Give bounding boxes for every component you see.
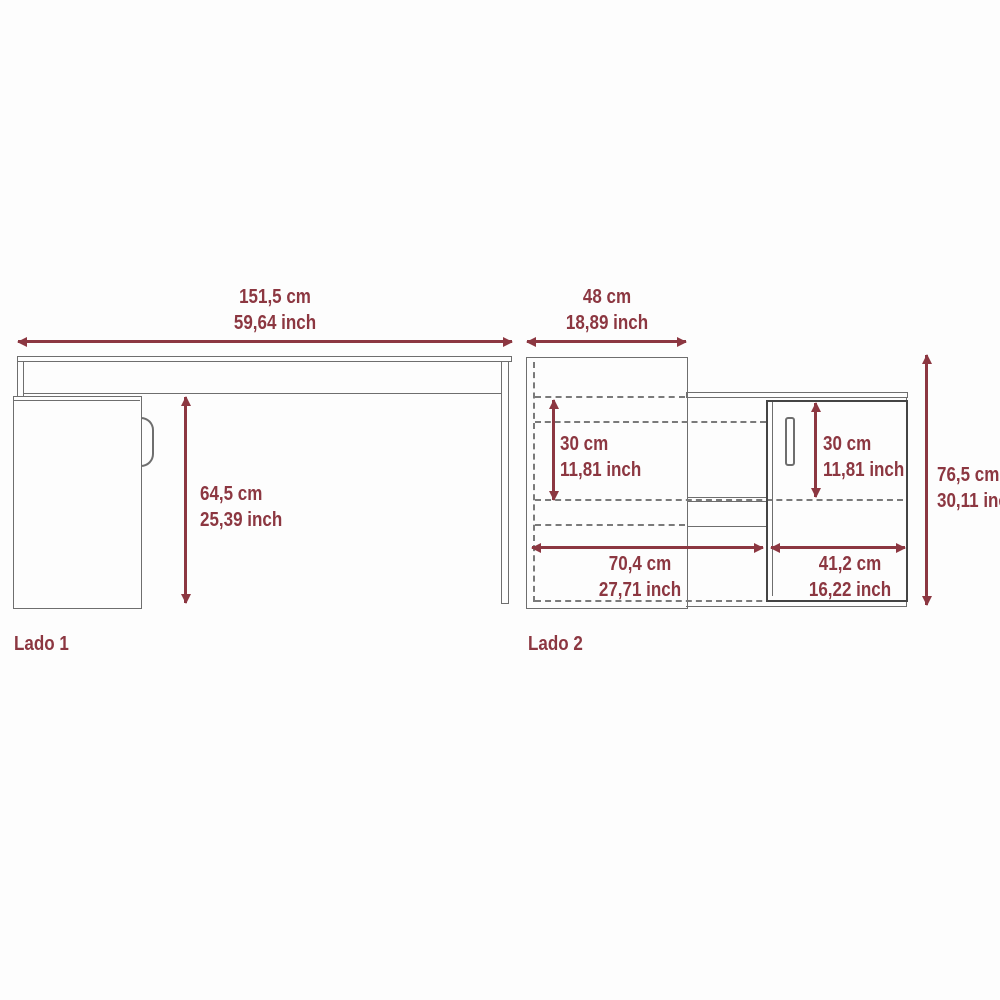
arrowhead-down-icon [922, 596, 932, 606]
lado1-height-cm: 64,5 cm [200, 481, 282, 507]
door-handle-slot-icon [785, 417, 795, 466]
lado2-top-width-cm: 48 cm [534, 284, 680, 310]
bottom-left-width-inch: 27,71 inch [555, 577, 725, 603]
lado2-top-width-dimension-line [527, 340, 686, 343]
pedestal-cabinet [13, 396, 142, 609]
cabinet-top-surface [686, 392, 908, 398]
lado1-title: Lado 1 [14, 633, 69, 655]
desk-top-surface [17, 356, 512, 362]
tower-shelf-dashed-4 [535, 524, 685, 526]
bottom-left-width-dimension-line [532, 546, 763, 549]
total-height-dimension-line [925, 355, 928, 605]
door-height-cm: 30 cm [823, 431, 904, 457]
furniture-dimension-diagram: 151,5 cm 59,64 inch 64,5 cm 25,39 inch L… [0, 0, 1000, 1000]
tower-shelf-dashed-2 [535, 421, 766, 423]
arrowhead-up-icon [922, 354, 932, 364]
lado2-top-width-inch: 18,89 inch [534, 310, 680, 336]
arrowhead-left-icon [17, 337, 27, 347]
arrowhead-right-icon [754, 543, 764, 553]
desk-left-edge-outer [17, 361, 18, 397]
tower-shelf-height-dimension-label: 30 cm 11,81 inch [560, 431, 641, 483]
pedestal-top-inner-edge [13, 400, 140, 401]
bottom-right-width-inch: 16,22 inch [765, 577, 935, 603]
total-height-dimension-label: 76,5 cm 30,11 inch [937, 462, 1000, 514]
lado1-width-dimension-label: 151,5 cm 59,64 inch [177, 284, 373, 336]
tower-inner-dashed-edge [533, 362, 535, 602]
bottom-left-width-dimension-label: 70,4 cm 27,71 inch [555, 551, 725, 603]
tower-shelf-dashed-1 [535, 396, 685, 398]
arrowhead-up-icon [811, 402, 821, 412]
lado2-title: Lado 2 [528, 633, 583, 655]
total-height-cm: 76,5 cm [937, 462, 1000, 488]
pedestal-door-handle-icon [141, 417, 154, 467]
door-height-inch: 11,81 inch [823, 457, 904, 483]
cabinet-bottom-edge [686, 606, 907, 607]
middle-shelf-line-2 [687, 501, 766, 502]
tower-shelf-height-inch: 11,81 inch [560, 457, 641, 483]
door-height-dimension-label: 30 cm 11,81 inch [823, 431, 904, 483]
arrowhead-down-icon [181, 594, 191, 604]
arrowhead-right-icon [677, 337, 687, 347]
bottom-right-width-cm: 41,2 cm [765, 551, 935, 577]
arrowhead-left-icon [526, 337, 536, 347]
lado1-width-dimension-line [18, 340, 512, 343]
desk-left-edge-inner [23, 361, 24, 397]
arrowhead-up-icon [181, 396, 191, 406]
lado1-height-inch: 25,39 inch [200, 507, 282, 533]
lado1-height-dimension-label: 64,5 cm 25,39 inch [200, 481, 282, 533]
arrowhead-left-icon [531, 543, 541, 553]
desk-right-leg [501, 361, 509, 604]
arrowhead-down-icon [811, 488, 821, 498]
lado1-width-cm: 151,5 cm [177, 284, 373, 310]
tower-shelf-height-dimension-line [552, 400, 555, 500]
tower-shelf-height-cm: 30 cm [560, 431, 641, 457]
bottom-right-width-dimension-label: 41,2 cm 16,22 inch [765, 551, 935, 603]
arrowhead-right-icon [503, 337, 513, 347]
arrowhead-down-icon [549, 491, 559, 501]
lado1-width-inch: 59,64 inch [177, 310, 373, 336]
arrowhead-up-icon [549, 399, 559, 409]
middle-shelf-line-3 [687, 526, 766, 527]
lado2-top-width-dimension-label: 48 cm 18,89 inch [534, 284, 680, 336]
lado1-height-dimension-line [184, 397, 187, 603]
bottom-right-width-dimension-line [771, 546, 905, 549]
desk-apron-bottom-edge [23, 393, 502, 394]
bottom-left-width-cm: 70,4 cm [555, 551, 725, 577]
middle-shelf-line-1 [687, 497, 766, 498]
door-height-dimension-line [814, 403, 817, 497]
total-height-inch: 30,11 inch [937, 488, 1000, 514]
